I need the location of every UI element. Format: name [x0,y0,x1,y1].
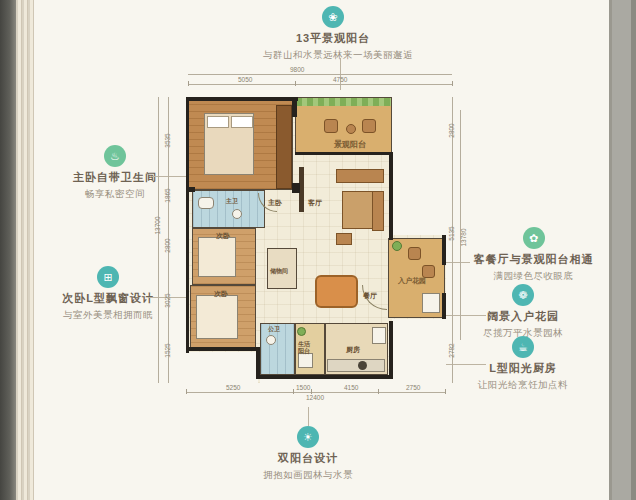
room-label-guest-bath: 公卫 [268,325,280,334]
room-label-living-room: 客厅 [308,198,322,208]
cookware-icon: ☕ [512,336,534,358]
book-spine-edge [0,0,16,500]
dim-top-seg2: 4750 [333,76,347,83]
dim-right-seg3: 2782 [448,343,455,357]
annotation-subtitle: 与室外美景相拥而眠 [38,309,178,322]
dim-line-top-total [188,74,452,75]
balcony-table [346,124,356,134]
dim-line-right-total [460,110,461,340]
connector-line-bottom [308,407,309,426]
floorplan: 主卧 主卫 景观阳台 客厅 次卧 储物间 次卧 餐厅 入户花园 生活阳台 厨房 … [186,97,446,383]
pillow [207,116,229,128]
lotus-icon: ❀ [322,6,344,28]
room-label-entry-garden: 入户花园 [398,276,426,286]
toilet [232,209,242,219]
annotation-subtitle: 让阳光给烹饪加点料 [455,379,591,392]
bed3 [196,295,238,339]
annotation-subtitle: 满园绿色尽收眼底 [466,270,601,283]
plant-icon: ✿ [523,227,545,249]
dining-table [315,275,358,308]
dim-left-total: 13700 [154,216,161,234]
annotation-title: 主卧自带卫生间 [45,170,185,185]
dim-left-seg5: 1525 [164,343,171,357]
sun-icon: ☀ [297,426,319,448]
dim-top-seg1: 5050 [238,76,252,83]
room-master-bath [192,190,265,228]
dim-line-bottom [186,392,445,393]
balcony-plant [297,327,306,336]
toilet [266,335,276,345]
balcony-planter [296,98,391,106]
annotation-subtitle: 与群山和水景远林来一场美丽邂逅 [263,49,403,62]
garden-chair [408,247,421,260]
side-sofa [372,191,384,231]
dim-line-left-total [158,97,159,383]
fridge [372,327,386,344]
annotation-title: 双阳台设计 [228,451,388,466]
annotation-entry-garden: ❁ 阔景入户花园 尽揽万平水景园林 [455,284,591,340]
pillow [231,116,253,128]
balcony-chair [324,119,338,133]
annotation-bay-window: ⊞ 次卧L型飘窗设计 与室外美景相拥而眠 [38,266,178,322]
bed2 [198,237,236,277]
sofa [336,169,384,183]
room-label-view-balcony: 景观阳台 [334,139,366,150]
dim-left-seg1: 3535 [164,133,171,147]
dim-right-total: 13780 [460,228,467,246]
annotation-title: 13平景观阳台 [263,31,403,46]
dim-bottom-total: 12400 [306,394,324,401]
annotation-title: 客餐厅与景观阳台相通 [466,252,601,267]
armchair [336,233,352,245]
dim-bottom-seg2: 1500 [296,384,310,391]
balcony-chair [362,119,376,133]
wardrobe [276,105,292,189]
room-label-bedroom3: 次卧 [214,289,228,299]
dim-bottom-seg1: 5250 [226,384,240,391]
annotation-title: 次卧L型飘窗设计 [38,291,178,306]
dim-bottom-seg3: 4150 [344,384,358,391]
page-edge-stripes [16,0,34,500]
garden-plant [392,241,402,251]
kitchen-counter [327,359,385,372]
room-label-bedroom2: 次卧 [216,231,230,241]
annotation-subtitle: 拥抱如画园林与水景 [228,469,388,482]
dim-bottom-seg4: 2750 [406,384,420,391]
annotation-double-balcony: ☀ 双阳台设计 拥抱如画园林与水景 [228,426,388,482]
room-label-dining-room: 餐厅 [363,291,377,301]
washer [298,353,313,368]
dim-line-top-seg [188,84,452,85]
bathtub-icon: ♨ [104,145,126,167]
annotation-living-balcony: ✿ 客餐厅与景观阳台相通 满园绿色尽收眼底 [466,227,601,283]
dim-left-seg3: 2800 [164,238,171,252]
dim-left-seg4: 3025 [164,293,171,307]
annotation-title: 阔景入户花园 [455,309,591,324]
room-label-storage: 储物间 [270,267,288,276]
room-label-master-bedroom: 主卧 [268,198,282,208]
annotation-view-balcony: ❀ 13平景观阳台 与群山和水景远林来一场美丽邂逅 [263,6,403,62]
bathtub [198,197,214,209]
dim-top-total: 9800 [290,66,304,73]
scanned-floorplan-page: ❀ 13平景观阳台 与群山和水景远林来一场美丽邂逅 ♨ 主卧自带卫生间 畅享私密… [0,0,636,500]
room-label-kitchen: 厨房 [346,345,360,355]
entry-mat [422,293,440,313]
stove [358,361,367,370]
master-bed [204,113,254,175]
connector-line-right1 [446,262,470,263]
room-label-master-bath: 主卫 [226,197,238,206]
dim-right-seg2: 5135 [448,226,455,240]
dim-right-seg1: 2800 [448,123,455,137]
garden-flower-icon: ❁ [512,284,534,306]
bay-window-icon: ⊞ [97,266,119,288]
dim-left-seg2: 1865 [164,188,171,202]
photo-right-edge [631,0,636,500]
room-label-utility-balcony: 生活阳台 [298,341,312,355]
